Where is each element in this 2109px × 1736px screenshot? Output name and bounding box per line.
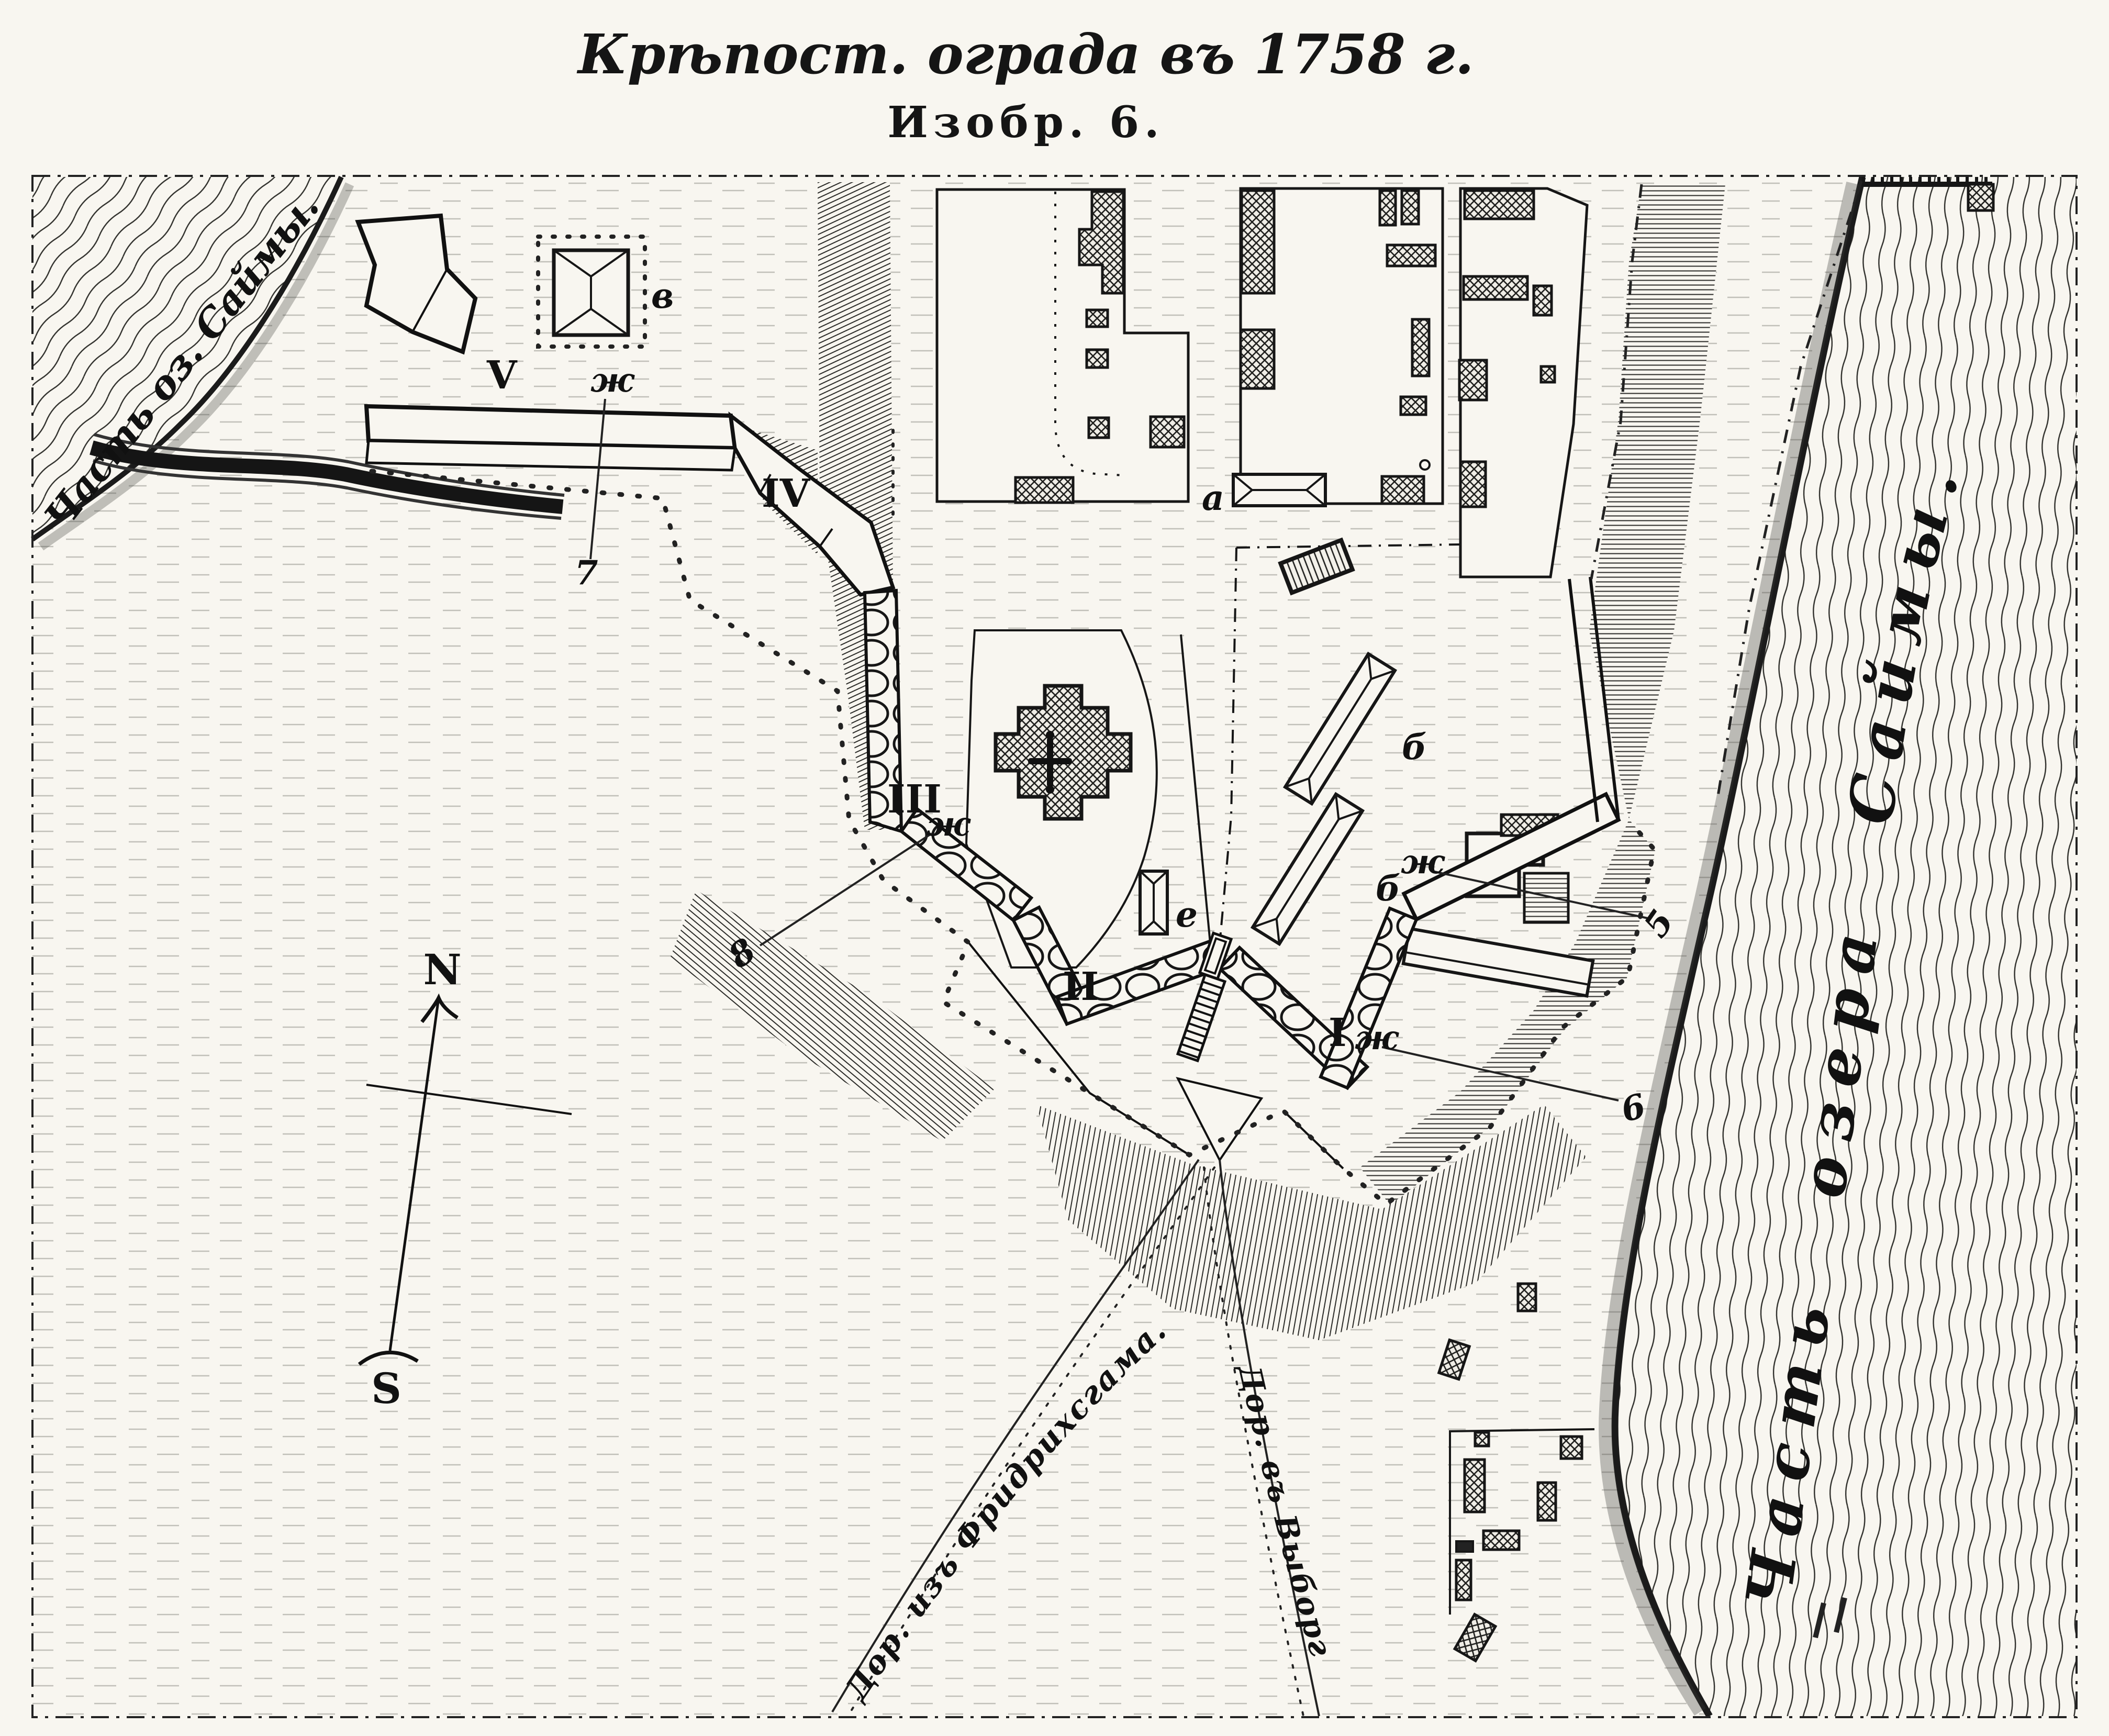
building [1475,1432,1489,1446]
building [1380,191,1396,225]
compass-north-label: N [423,945,461,994]
building [1561,1437,1582,1459]
building [1087,310,1108,327]
building [1151,417,1184,447]
building [1382,476,1424,504]
building [1524,873,1568,922]
building [1456,1541,1473,1552]
building-e [1140,871,1167,934]
building [1465,191,1534,219]
building [1464,276,1527,299]
mark-a: а [1202,477,1224,518]
bastion-i-label: I [1329,1010,1347,1055]
building [1242,191,1274,293]
building [1534,286,1552,315]
building [1401,397,1426,415]
building [1089,418,1109,438]
building [1465,1460,1485,1512]
map-page: N S V IV III II I ж ж ж ж 7 8 5 6 а б б … [0,0,2109,1736]
building [1412,319,1429,376]
bastion-ii-label: II [1063,964,1099,1009]
building [1483,1531,1519,1550]
building [1087,350,1108,368]
redoubt-v [554,250,628,335]
building [1456,1560,1471,1600]
bastion-iv-label: IV [762,471,811,516]
building [1016,477,1073,503]
building [1241,330,1274,388]
figure-label: Изобр. 6. [887,97,1164,148]
mark-7: 7 [575,553,598,593]
building [1518,1284,1536,1311]
mark-b1: б [1402,727,1427,767]
building-a [1233,474,1325,506]
building [1387,245,1435,266]
mark-zh-nw: ж [590,361,635,400]
mark-e: е [1176,894,1198,935]
map-title: Крѣпост. ограда въ 1758 г. [576,22,1474,86]
building [1460,462,1486,507]
mark-zh-iii: ж [927,805,971,844]
building [1402,191,1419,224]
compass-south-label: S [371,1364,401,1413]
building [1538,1483,1556,1520]
bastion-v-label: V [486,353,518,398]
building [1459,360,1487,400]
mark-zh-i: ж [1355,1018,1399,1058]
mark-zh-east: ж [1401,842,1445,882]
building [1541,366,1555,382]
mark-b2: б [1376,868,1401,909]
mark-v: в [651,275,674,316]
fortress-map: N S V IV III II I ж ж ж ж 7 8 5 6 а б б … [0,0,2109,1736]
